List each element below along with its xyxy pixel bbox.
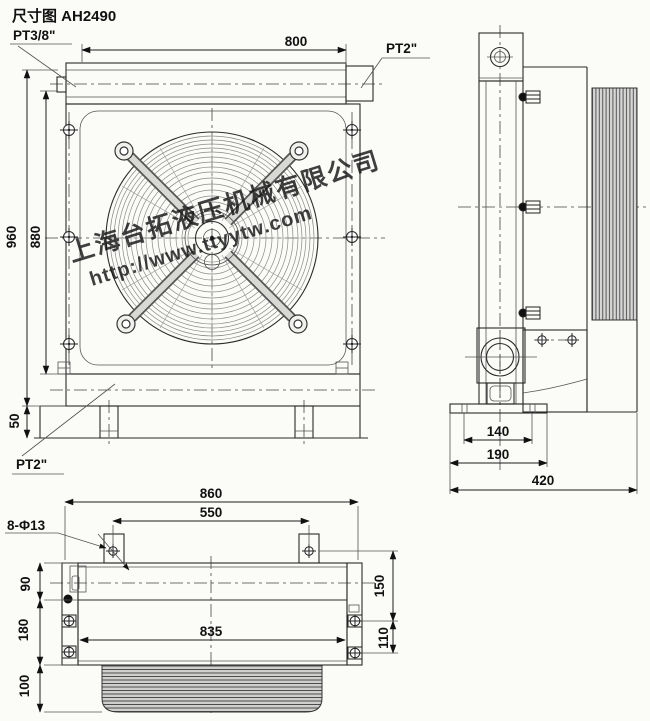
side-view: 140 190 420 (450, 25, 648, 494)
dim-550: 550 (200, 505, 223, 520)
bottom-view: 860 550 8-Φ13 835 90 180 100 (5, 486, 398, 716)
dim-100: 100 (17, 675, 32, 698)
side-dimensions: 140 190 420 (450, 413, 637, 494)
side-bolt-icon (519, 201, 540, 213)
side-bolt-icon (519, 91, 540, 103)
bottom-tank (34, 362, 368, 438)
dim-190: 190 (487, 447, 510, 462)
dim-50: 50 (7, 413, 22, 428)
port-label-pt2-bottom: PT2" (16, 457, 47, 472)
dim-880: 880 (28, 226, 43, 249)
front-centerlines (45, 84, 385, 447)
dim-835: 835 (200, 624, 223, 639)
dark-bolt-icon (64, 595, 73, 604)
bracket-bolt-icon (348, 647, 362, 659)
top-tank (57, 63, 373, 104)
side-body (450, 33, 637, 413)
bolt-icon (60, 335, 78, 353)
mount-hole-icon (302, 544, 316, 558)
port-label-pt38: PT3/8" (13, 28, 55, 43)
holes-callout: 8-Φ13 (7, 518, 46, 533)
bracket-bolt-icon (348, 615, 362, 627)
port-label-pt2-top: PT2" (386, 41, 417, 56)
cooling-fins (592, 88, 637, 320)
dim-800: 800 (285, 34, 308, 49)
bracket-bolt-icon (62, 615, 76, 627)
dim-90: 90 (18, 576, 33, 591)
dim-420: 420 (532, 473, 555, 488)
dim-110: 110 (376, 627, 391, 649)
dim-140: 140 (487, 424, 510, 439)
dim-150: 150 (372, 575, 387, 598)
dim-860: 860 (200, 486, 223, 501)
dimension-drawing: 800 960 880 50 PT3/8" PT2" PT2" (0, 0, 650, 721)
bottom-body (62, 534, 362, 712)
side-bolt-icon (519, 307, 540, 319)
fan-shroud (102, 665, 322, 712)
bolt-icon (60, 121, 78, 139)
watermark: 上海台拓液压机械有限公司 http://www.ttyytw.com (65, 145, 383, 291)
bracket-bolt-icon (62, 646, 76, 658)
drawing-title: 尺寸图 AH2490 (12, 7, 116, 25)
drawing-sheet: 800 960 880 50 PT3/8" PT2" PT2" (0, 0, 650, 721)
dim-960: 960 (4, 226, 19, 249)
dim-180: 180 (16, 619, 31, 642)
